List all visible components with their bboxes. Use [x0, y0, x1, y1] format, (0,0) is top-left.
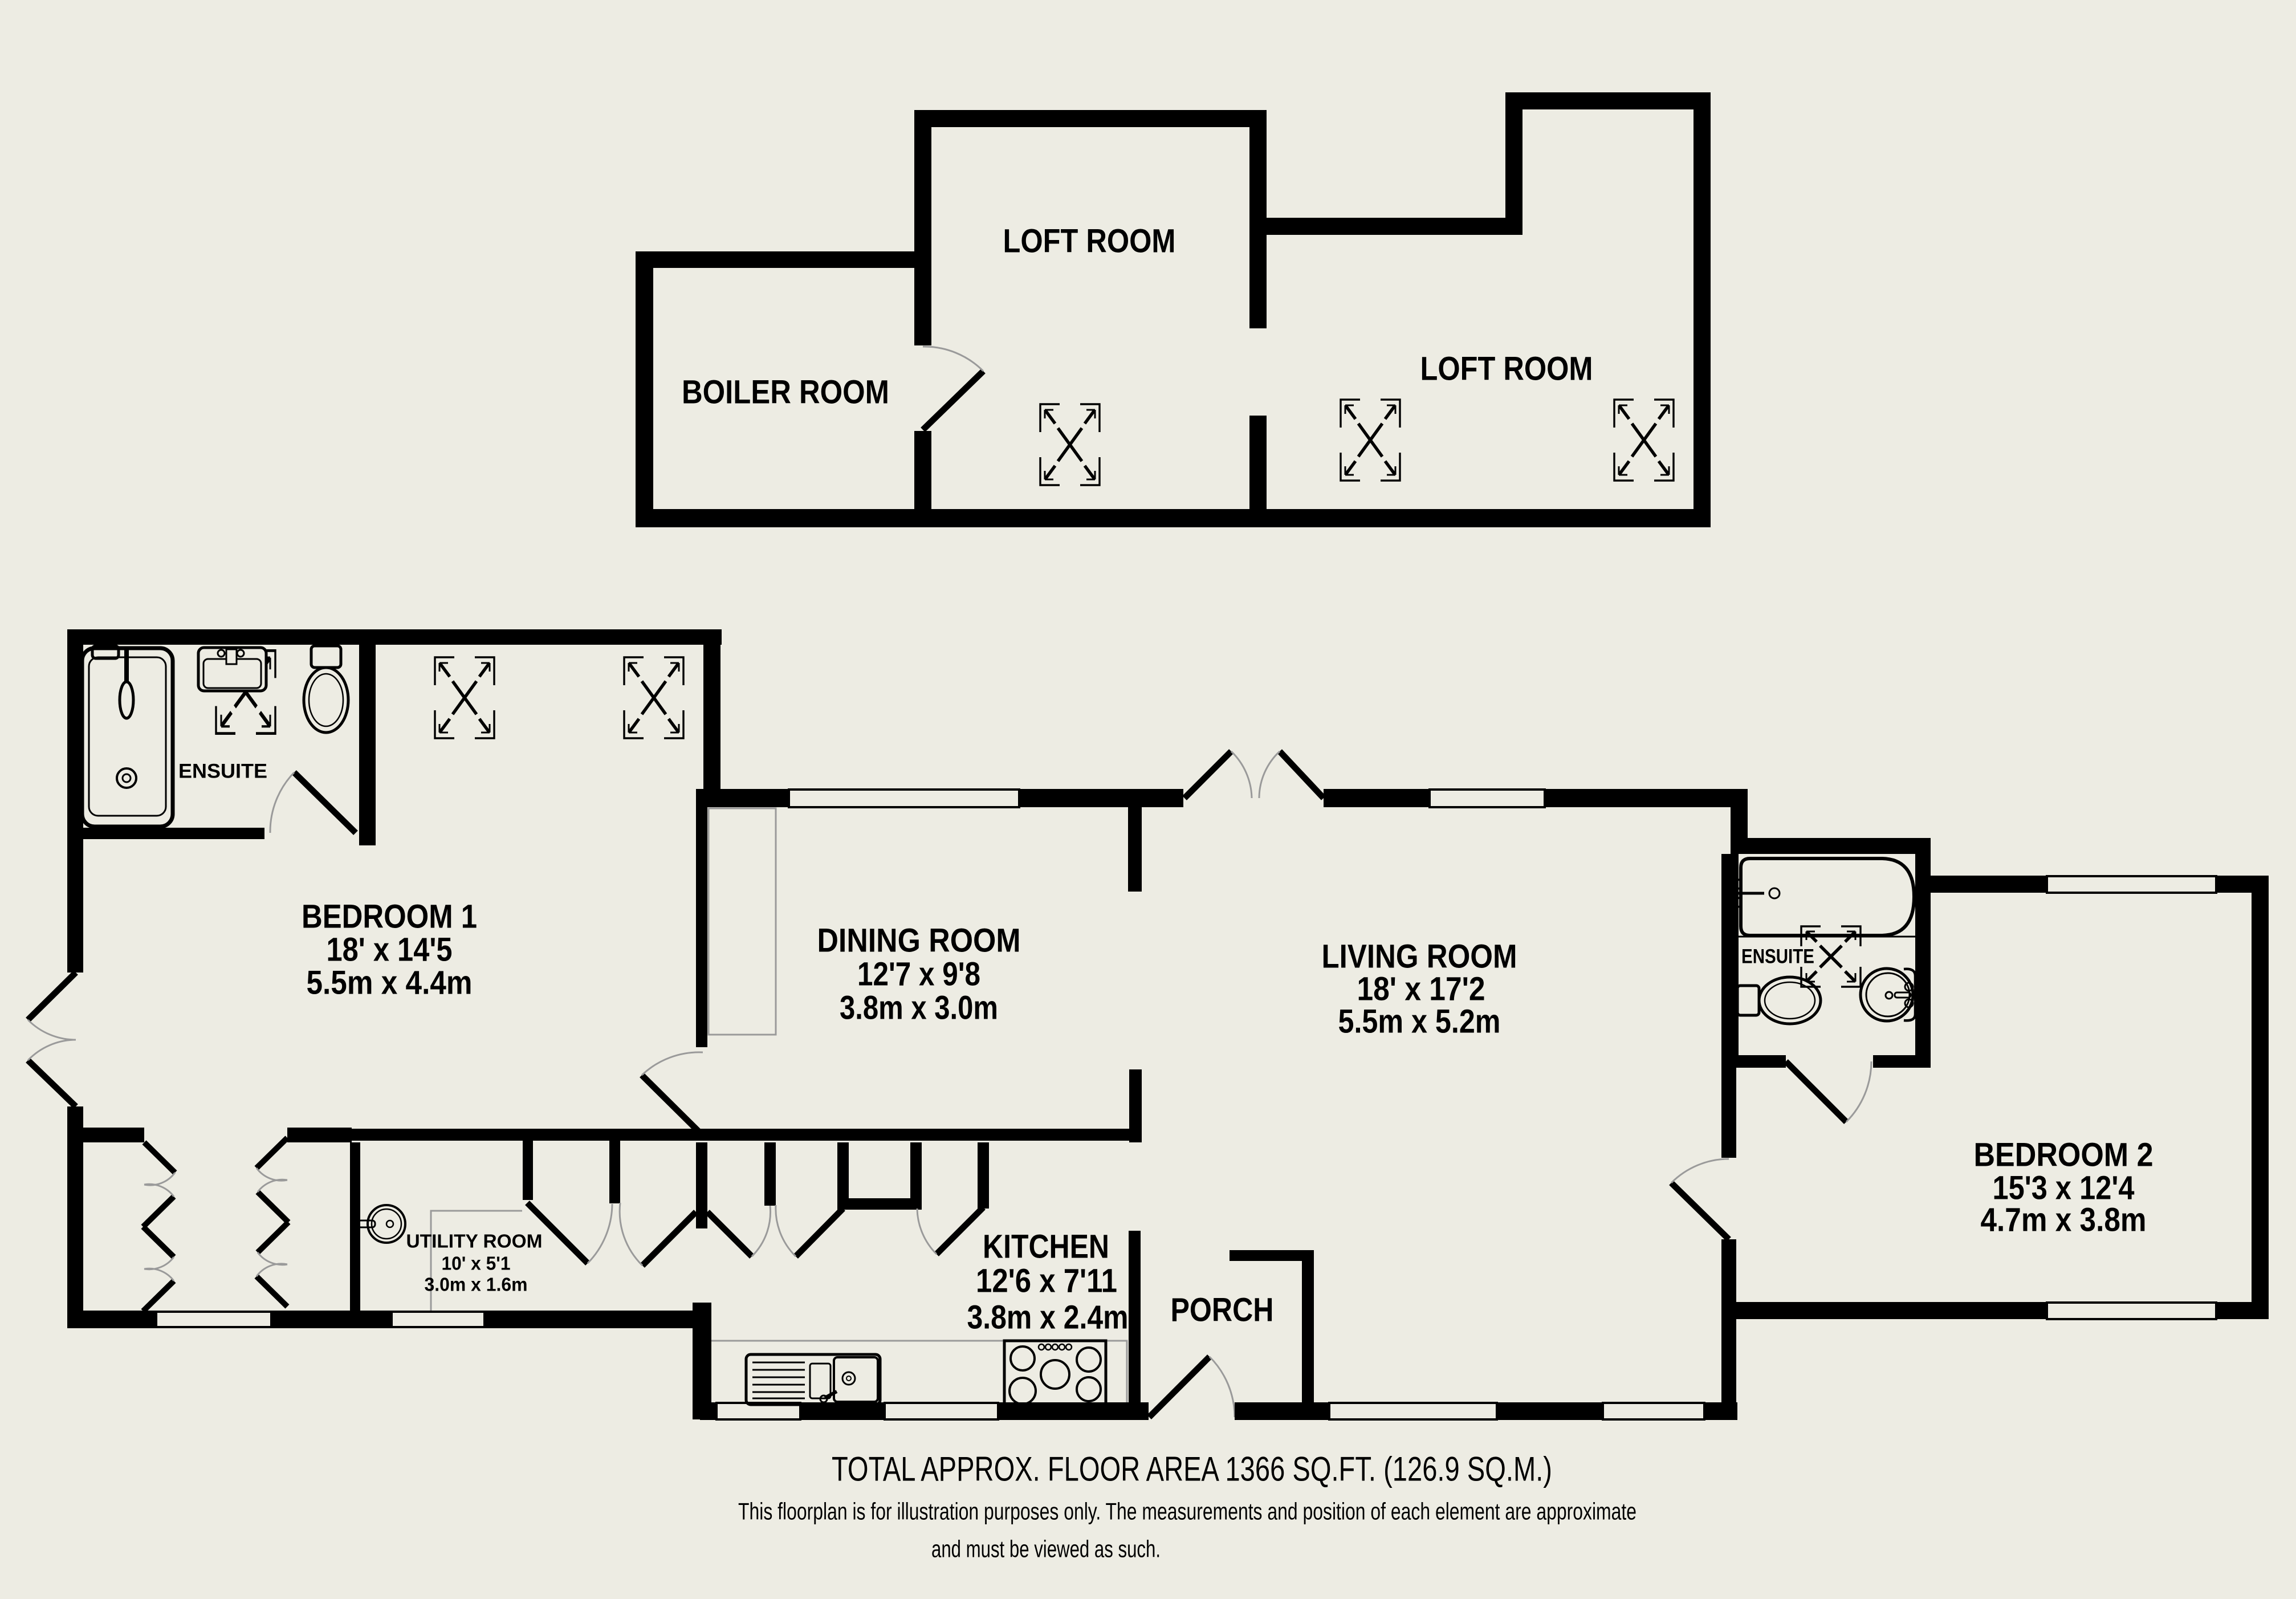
svg-text:BEDROOM 2: BEDROOM 2: [1974, 1137, 2153, 1174]
svg-text:KITCHEN: KITCHEN: [983, 1228, 1109, 1266]
svg-text:ENSUITE: ENSUITE: [178, 760, 267, 783]
svg-text:5.5m x 5.2m: 5.5m x 5.2m: [1338, 1003, 1501, 1040]
svg-text:LOFT ROOM: LOFT ROOM: [1003, 223, 1176, 260]
svg-text:5.5m x 4.4m: 5.5m x 4.4m: [307, 965, 473, 1002]
svg-text:BEDROOM 1: BEDROOM 1: [302, 898, 477, 935]
svg-text:DINING ROOM: DINING ROOM: [817, 922, 1021, 959]
svg-text:ENSUITE: ENSUITE: [1741, 946, 1814, 968]
svg-text:3.8m x 2.4m: 3.8m x 2.4m: [967, 1299, 1129, 1336]
svg-text:and must be viewed as such.: and must be viewed as such.: [931, 1536, 1161, 1563]
svg-text:12'6 x 7'11: 12'6 x 7'11: [976, 1263, 1117, 1300]
svg-text:LOFT ROOM: LOFT ROOM: [1420, 351, 1593, 388]
svg-text:12'7 x 9'8: 12'7 x 9'8: [857, 956, 980, 993]
svg-text:This floorplan is for illustra: This floorplan is for illustration purpo…: [738, 1498, 1636, 1525]
svg-text:18' x 14'5: 18' x 14'5: [327, 931, 453, 969]
svg-text:LIVING ROOM: LIVING ROOM: [1322, 938, 1517, 975]
svg-text:3.8m x 3.0m: 3.8m x 3.0m: [840, 990, 998, 1027]
svg-text:18' x 17'2: 18' x 17'2: [1357, 971, 1485, 1008]
svg-text:3.0m x 1.6m: 3.0m x 1.6m: [425, 1274, 528, 1295]
svg-text:TOTAL APPROX. FLOOR AREA 1366: TOTAL APPROX. FLOOR AREA 1366 SQ.FT. (12…: [832, 1450, 1552, 1488]
svg-text:PORCH: PORCH: [1171, 1292, 1274, 1329]
svg-text:BOILER ROOM: BOILER ROOM: [682, 374, 889, 411]
svg-text:4.7m x 3.8m: 4.7m x 3.8m: [1981, 1202, 2147, 1239]
svg-text:UTILITY ROOM: UTILITY ROOM: [406, 1231, 543, 1252]
svg-text:10' x 5'1: 10' x 5'1: [442, 1253, 511, 1274]
